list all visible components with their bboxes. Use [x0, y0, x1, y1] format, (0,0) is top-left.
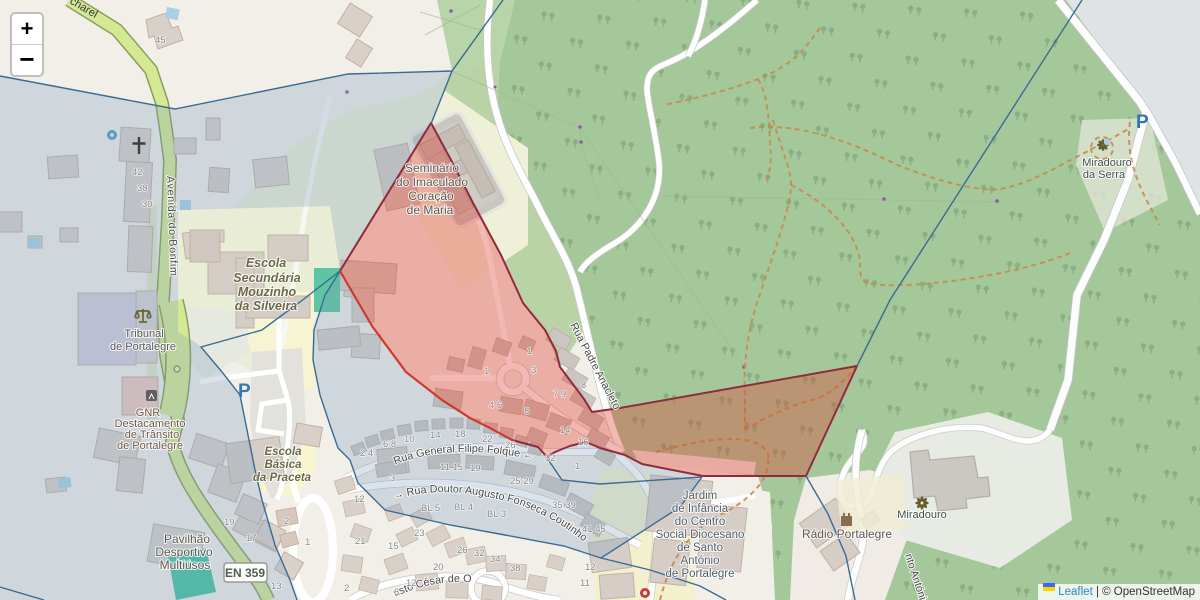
svg-text:da Serra: da Serra: [1083, 169, 1126, 181]
svg-text:de Portalegre: de Portalegre: [117, 440, 183, 452]
svg-text:3: 3: [531, 365, 536, 376]
svg-text:13: 13: [271, 581, 282, 592]
svg-text:de Portalegre: de Portalegre: [110, 341, 176, 353]
svg-text:BL 3: BL 3: [487, 509, 506, 520]
svg-text:42: 42: [132, 167, 143, 178]
svg-text:Coração: Coração: [408, 189, 454, 203]
svg-text:19: 19: [470, 463, 481, 474]
svg-text:P: P: [238, 381, 251, 402]
svg-text:Social Diocesano: Social Diocesano: [656, 529, 745, 541]
svg-text:7 9: 7 9: [553, 389, 566, 400]
svg-text:EN 359: EN 359: [225, 566, 265, 580]
svg-text:19: 19: [224, 517, 235, 528]
svg-text:23: 23: [414, 528, 425, 539]
svg-text:17: 17: [246, 533, 257, 544]
svg-text:11 15: 11 15: [440, 462, 463, 473]
svg-text:2 4: 2 4: [360, 448, 373, 459]
svg-text:Miradouro: Miradouro: [1082, 157, 1132, 169]
svg-text:1: 1: [527, 346, 532, 357]
svg-text:da Praceta: da Praceta: [253, 472, 312, 484]
svg-text:2: 2: [344, 583, 349, 594]
svg-text:38: 38: [137, 183, 148, 194]
svg-text:41 45: 41 45: [582, 524, 606, 535]
svg-text:38: 38: [510, 563, 521, 574]
svg-text:Secundária: Secundária: [233, 271, 300, 285]
svg-text:2: 2: [284, 516, 289, 527]
svg-text:8: 8: [524, 406, 529, 417]
svg-text:1: 1: [575, 461, 580, 472]
svg-text:18: 18: [455, 429, 466, 440]
svg-text:26: 26: [457, 545, 468, 556]
svg-text:25 29: 25 29: [510, 476, 534, 487]
svg-text:de Portalegre: de Portalegre: [665, 568, 734, 580]
svg-text:de Santo: de Santo: [677, 542, 723, 554]
svg-text:BL 4: BL 4: [454, 502, 473, 513]
svg-text:BL 5: BL 5: [421, 503, 440, 514]
svg-text:30: 30: [142, 199, 153, 210]
svg-text:Básica: Básica: [264, 459, 302, 471]
svg-text:P: P: [1136, 112, 1149, 133]
svg-text:32: 32: [474, 548, 485, 559]
svg-text:Jardim: Jardim: [683, 490, 718, 502]
svg-text:35 39: 35 39: [552, 500, 576, 511]
svg-text:8: 8: [581, 380, 586, 391]
svg-text:12: 12: [354, 494, 365, 505]
svg-text:26: 26: [505, 440, 516, 451]
svg-text:4 6: 4 6: [489, 400, 502, 411]
svg-text:21: 21: [355, 536, 366, 547]
svg-text:22: 22: [482, 434, 493, 445]
svg-text:3: 3: [390, 473, 395, 484]
svg-text:de Infância: de Infância: [672, 503, 729, 515]
svg-text:Seminário: Seminário: [405, 161, 459, 175]
svg-text:do Centro: do Centro: [675, 516, 726, 528]
svg-text:da Silveira: da Silveira: [235, 299, 298, 313]
svg-text:15: 15: [388, 541, 399, 552]
svg-text:1: 1: [305, 537, 310, 548]
svg-text:de Maria: de Maria: [407, 203, 454, 217]
svg-text:Desportivo: Desportivo: [155, 545, 213, 559]
svg-text:6 8: 6 8: [383, 439, 396, 450]
svg-text:Escola: Escola: [264, 446, 302, 458]
svg-text:14: 14: [560, 425, 571, 436]
svg-text:Pavilhão: Pavilhão: [164, 532, 210, 546]
svg-text:do Imaculado: do Imaculado: [396, 175, 468, 189]
svg-text:16: 16: [578, 437, 589, 448]
svg-text:10: 10: [404, 434, 415, 445]
svg-text:Rádio Portalegre: Rádio Portalegre: [802, 527, 892, 541]
svg-text:34: 34: [490, 554, 501, 565]
svg-text:12: 12: [585, 562, 596, 573]
svg-text:12: 12: [406, 578, 417, 589]
svg-text:45: 45: [155, 35, 166, 46]
svg-text:Miradouro: Miradouro: [897, 509, 947, 521]
svg-text:António: António: [680, 555, 719, 567]
svg-text:6: 6: [394, 587, 399, 598]
svg-text:32: 32: [545, 453, 556, 464]
svg-text:11: 11: [580, 578, 590, 589]
svg-text:Escola: Escola: [246, 256, 286, 270]
svg-text:Multiúsos: Multiúsos: [160, 558, 211, 572]
svg-text:Mouzinho: Mouzinho: [238, 285, 297, 299]
svg-text:20: 20: [433, 562, 444, 573]
svg-text:14: 14: [430, 430, 441, 441]
svg-text:Tribunal: Tribunal: [124, 328, 163, 340]
